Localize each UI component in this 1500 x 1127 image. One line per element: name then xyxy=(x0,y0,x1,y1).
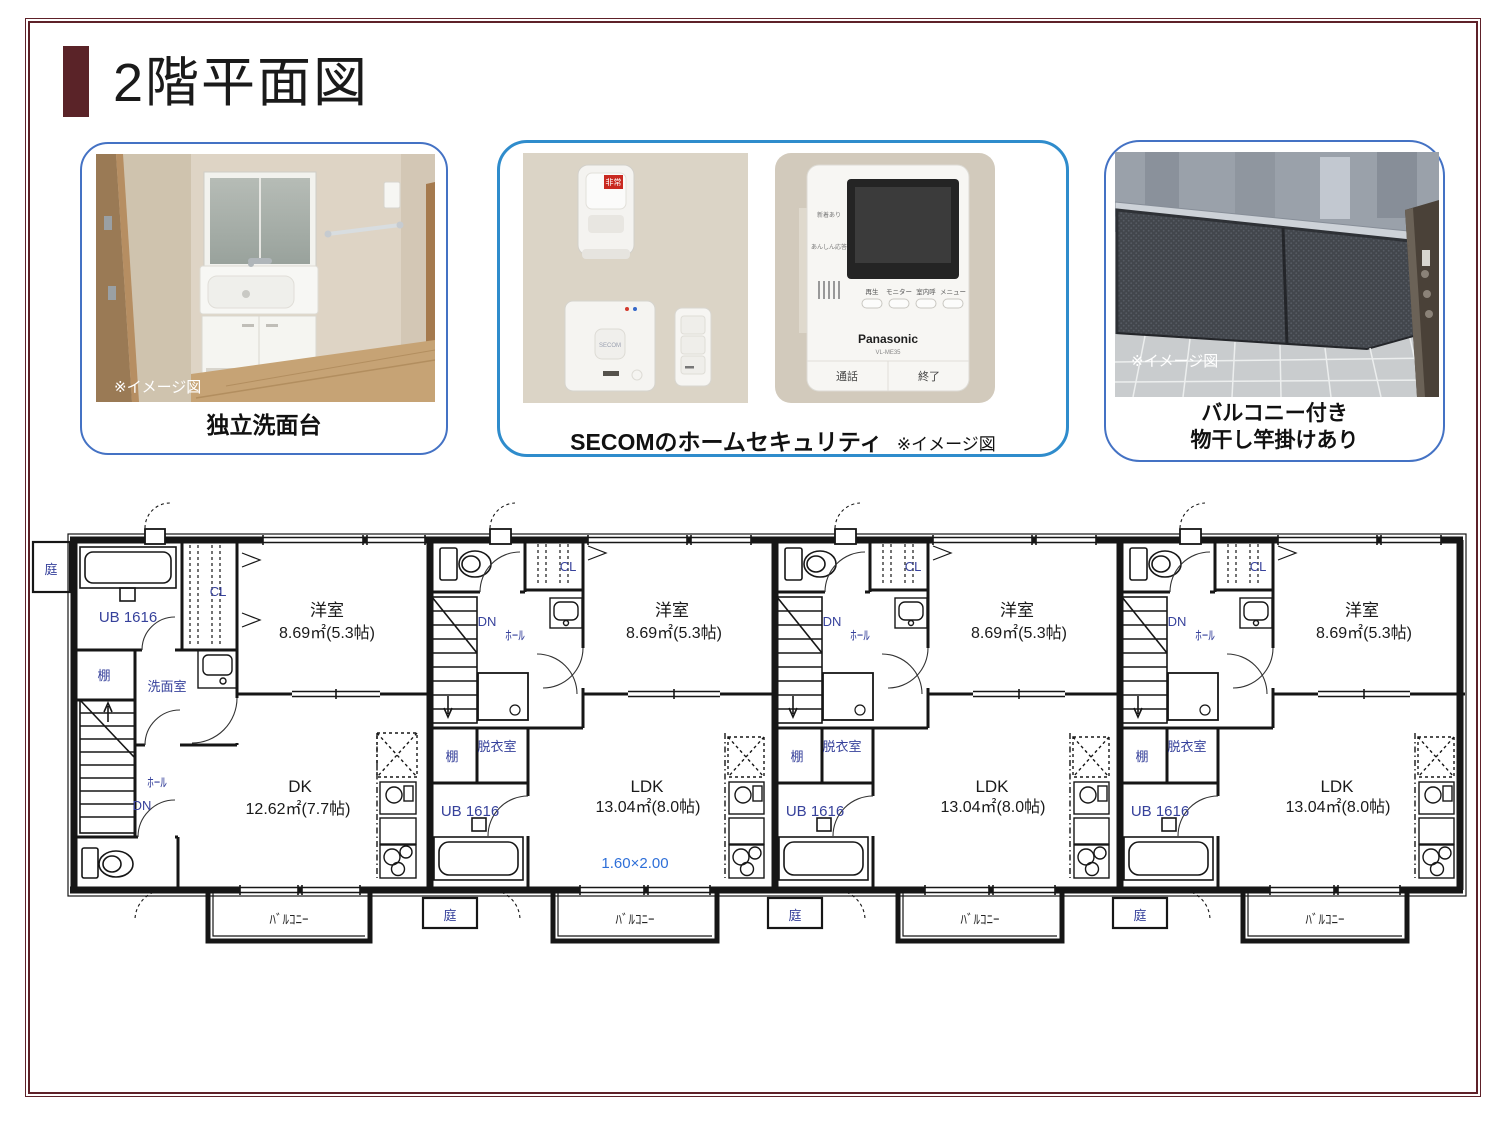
u4-dn: DN xyxy=(1168,614,1187,629)
u2-cl: CL xyxy=(560,559,577,574)
u3-dressing: 脱衣室 xyxy=(822,739,861,754)
mirror-cabinet xyxy=(204,172,316,270)
intercom-end-button: 終了 xyxy=(918,369,940,383)
svg-text:メニュー: メニュー xyxy=(940,289,966,296)
watermark: ※イメージ図 xyxy=(1131,353,1218,370)
u2-shelf: 棚 xyxy=(445,749,458,764)
intercom-talk-button: 通話 xyxy=(836,369,858,383)
u4-main-size: 13.04㎡(8.0帖) xyxy=(1286,798,1391,816)
u3-main-size: 13.04㎡(8.0帖) xyxy=(941,798,1046,816)
u2-ub: UB 1616 xyxy=(441,803,499,820)
intercom-status-1: 新着あり xyxy=(817,211,841,219)
balcony-caption-line2: 物干し竿掛けあり xyxy=(1106,427,1443,454)
sensor-label: 非常 xyxy=(606,177,622,187)
intercom-photo: 新着あり あんしん応答 再生 モニター 室内呼 メニュー Pa xyxy=(775,153,995,403)
toilet-fixture xyxy=(82,848,133,878)
stairs xyxy=(80,700,135,833)
secom-devices-photo: 非常 SECOM xyxy=(523,153,748,403)
secom-logo: SECOM xyxy=(599,343,621,349)
u2-balcony: ﾊﾞﾙｺﾆｰ xyxy=(616,912,655,927)
svg-text:再生: 再生 xyxy=(866,287,880,296)
feature-box-security: 非常 SECOM xyxy=(497,140,1069,457)
u4-yard: 庭 xyxy=(1133,908,1146,923)
slide: 2階平面図 xyxy=(0,0,1500,1127)
wall-switch xyxy=(675,308,711,386)
u1-west-size: 8.69㎡(5.3帖) xyxy=(279,624,375,642)
u2-hall: ﾎｰﾙ xyxy=(505,628,525,643)
u1-ub: UB 1616 xyxy=(99,609,157,626)
u1-main: DK xyxy=(288,777,312,796)
intercom-model: VL-ME35 xyxy=(875,350,901,356)
outer-walls xyxy=(68,534,1466,896)
u4-dressing: 脱衣室 xyxy=(1167,739,1206,754)
u3-cl: CL xyxy=(905,559,922,574)
u2-yard: 庭 xyxy=(443,908,456,923)
u3-ub: UB 1616 xyxy=(786,803,844,820)
u1-shelf: 棚 xyxy=(97,668,110,683)
security-caption-note: ※イメージ図 xyxy=(897,435,996,454)
feature-box-washstand: ※イメージ図 独立洗面台 xyxy=(80,142,448,455)
balcony-caption: バルコニー付き 物干し竿掛けあり xyxy=(1106,400,1443,455)
light-switch xyxy=(384,182,400,208)
u4-balcony: ﾊﾞﾙｺﾆｰ xyxy=(1306,912,1345,927)
u1-dn: DN xyxy=(133,798,152,813)
floor-plan-drawing: 庭 UB 1616 CL 洋室 8.69㎡(5.3帖) 棚 洗面室 ﾎｰﾙ DN… xyxy=(30,498,1470,963)
u3-dn: DN xyxy=(823,614,842,629)
u2-dim: 1.60×2.00 xyxy=(601,855,668,872)
u4-west: 洋室 xyxy=(1345,601,1379,620)
u2-main-size: 13.04㎡(8.0帖) xyxy=(596,798,701,816)
unit-1-structure xyxy=(33,503,430,941)
svg-text:室内呼: 室内呼 xyxy=(916,287,936,296)
u1-balcony: ﾊﾞﾙｺﾆｰ xyxy=(270,912,309,927)
feature-box-balcony: ※イメージ図 バルコニー付き 物干し竿掛けあり xyxy=(1104,140,1445,462)
u3-main: LDK xyxy=(975,777,1009,796)
u2-dressing: 脱衣室 xyxy=(477,739,516,754)
u1-main-size: 12.62㎡(7.7帖) xyxy=(246,800,351,818)
unit-4-structure xyxy=(1113,503,1465,941)
u1-west: 洋室 xyxy=(310,601,344,620)
u2-west: 洋室 xyxy=(655,601,689,620)
bathtub xyxy=(80,547,176,601)
secom-sensor: 非常 xyxy=(578,165,634,259)
intercom-monitor: 新着あり あんしん応答 再生 モニター 室内呼 メニュー Pa xyxy=(807,165,969,391)
u4-main: LDK xyxy=(1320,777,1354,796)
balcony-caption-line1: バルコニー付き xyxy=(1106,400,1443,427)
u1-cl: CL xyxy=(210,584,227,599)
watermark: ※イメージ図 xyxy=(114,379,201,396)
u3-west-size: 8.69㎡(5.3帖) xyxy=(971,624,1067,642)
washstand-fixture xyxy=(198,650,237,688)
u2-west-size: 8.69㎡(5.3帖) xyxy=(626,624,722,642)
vanity-unit xyxy=(200,258,318,374)
intercom-brand: Panasonic xyxy=(858,332,918,346)
secom-hub: SECOM xyxy=(565,301,655,391)
kitchen-fixtures xyxy=(377,733,417,878)
u3-hall: ﾎｰﾙ xyxy=(850,628,870,643)
u2-dn: DN xyxy=(478,614,497,629)
u3-yard: 庭 xyxy=(788,908,801,923)
unit-3-structure xyxy=(768,503,1120,941)
u1-hall: ﾎｰﾙ xyxy=(147,775,167,790)
svg-text:モニター: モニター xyxy=(886,287,912,296)
u4-ub: UB 1616 xyxy=(1131,803,1189,820)
u3-balcony: ﾊﾞﾙｺﾆｰ xyxy=(961,912,1000,927)
intercom-status-2: あんしん応答 xyxy=(811,243,847,251)
u4-shelf: 棚 xyxy=(1135,749,1148,764)
washstand-caption: 独立洗面台 xyxy=(82,406,446,440)
washstand-photo: ※イメージ図 xyxy=(96,154,435,402)
security-caption: SECOMのホームセキュリティ xyxy=(570,429,882,455)
u4-hall: ﾎｰﾙ xyxy=(1195,628,1215,643)
security-caption-row: SECOMのホームセキュリティ ※イメージ図 xyxy=(500,423,1066,457)
title-accent-bar xyxy=(63,46,89,117)
u3-shelf: 棚 xyxy=(790,749,803,764)
u1-yard: 庭 xyxy=(44,562,57,577)
u3-west: 洋室 xyxy=(1000,601,1034,620)
balcony-photo: ※イメージ図 xyxy=(1115,152,1439,397)
u4-cl: CL xyxy=(1250,559,1267,574)
u1-wash: 洗面室 xyxy=(147,679,186,694)
unit-2-structure xyxy=(423,503,775,941)
u4-west-size: 8.69㎡(5.3帖) xyxy=(1316,624,1412,642)
page-title: 2階平面図 xyxy=(113,38,369,117)
u2-main: LDK xyxy=(630,777,664,796)
sliding-door xyxy=(237,689,430,699)
